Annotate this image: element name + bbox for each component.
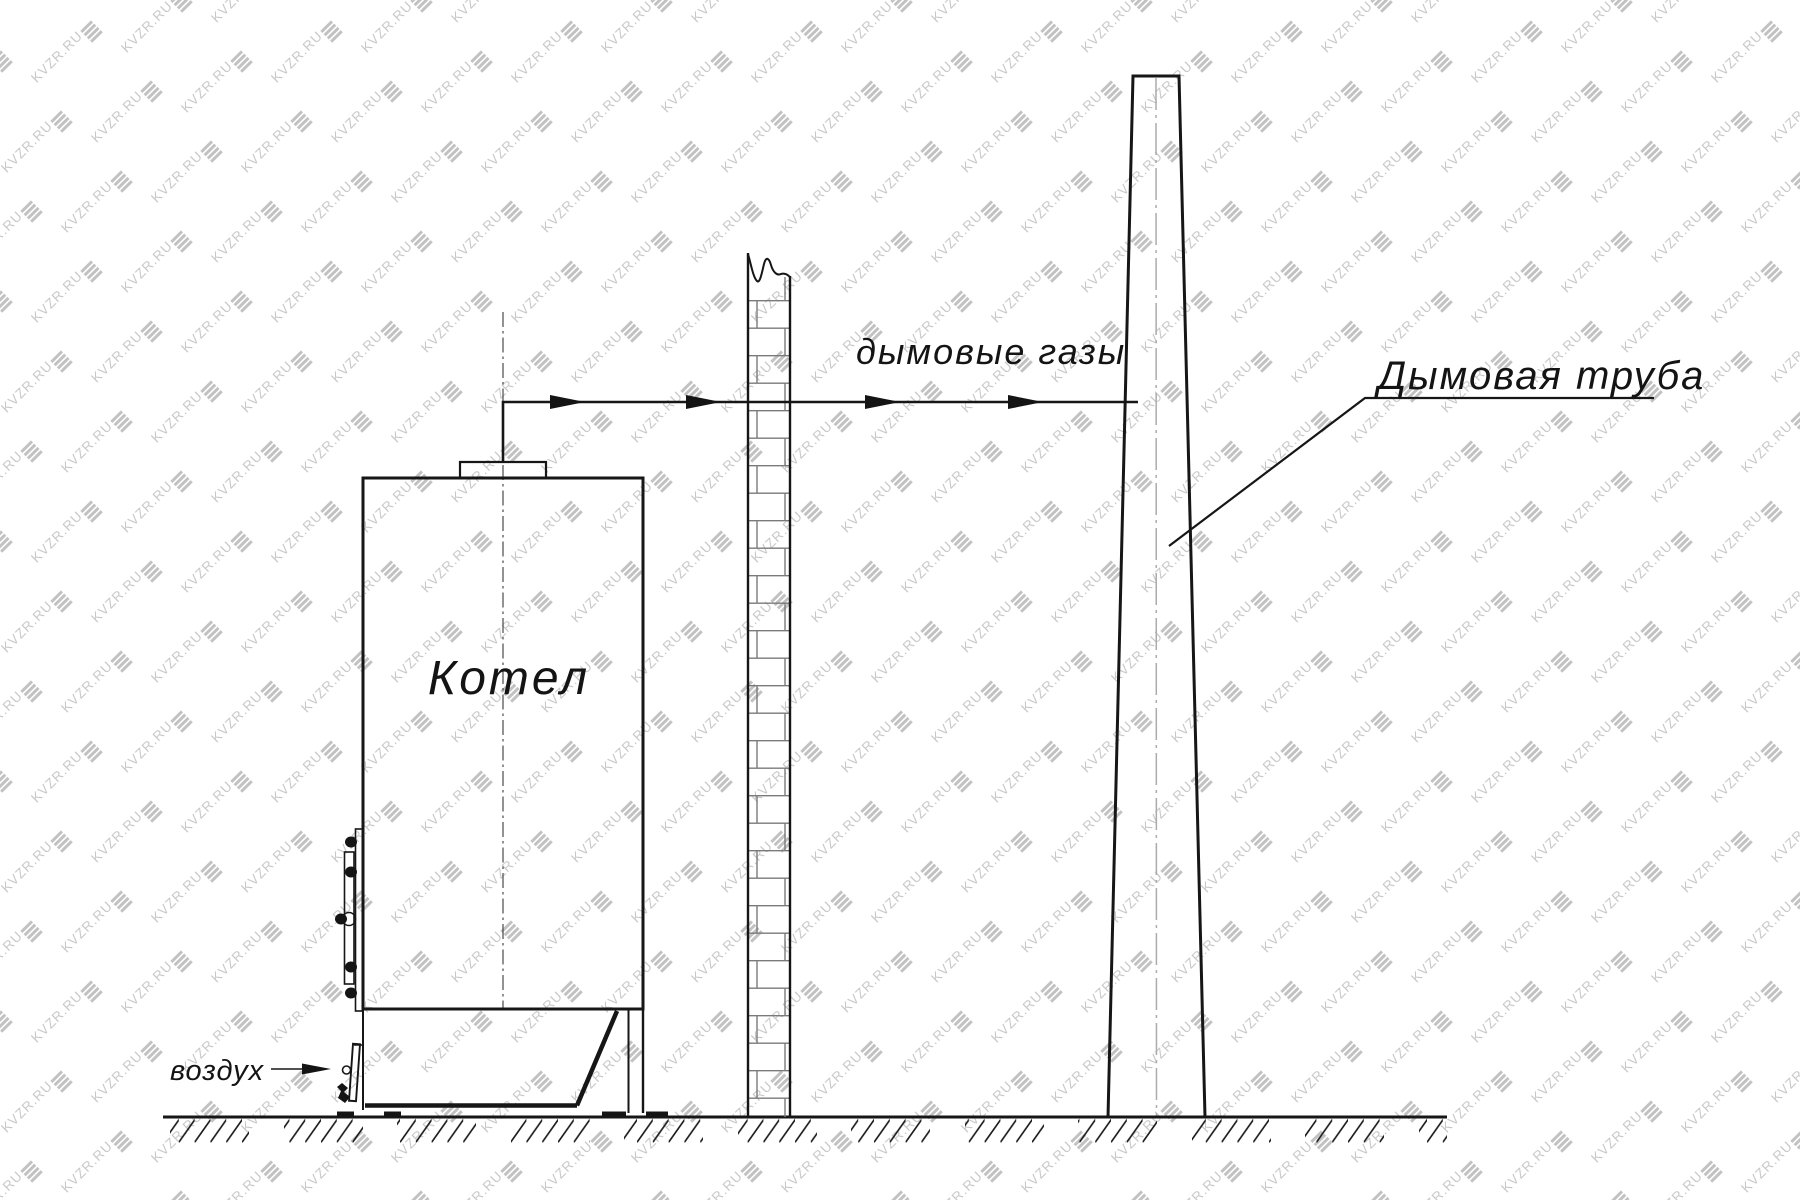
watermark-overlay [0,0,1800,1200]
hinge-knob-icon [345,837,357,848]
door-handle-icon [335,914,347,925]
ground [163,1117,1447,1143]
foot-pad [602,1112,626,1118]
ground-hatch-segment [511,1119,590,1143]
foot-pad [337,1112,354,1118]
foot-pad [646,1112,668,1118]
chimney-label: Дымовая труба [1374,354,1705,398]
chimney-centerline [1156,78,1157,1117]
ground-hatch-segment [738,1119,817,1143]
hinge-knob-icon [345,867,357,878]
ground-hatch-segment [284,1119,363,1143]
ground-hatch-segment [1305,1119,1384,1143]
drawing-canvas: KVZR.RU [0,0,1800,1200]
ground-hatch-segment [1192,1119,1271,1143]
ground-hatch-segment [965,1119,1044,1143]
flue-gases-label: дымовые газы [856,331,1126,372]
ground-hatch-segment [1419,1119,1447,1143]
ground-hatch-segment [170,1119,249,1143]
hinge-knob-icon [345,962,357,973]
boiler-chimney-scheme: KVZR.RU [0,0,1800,1200]
foot-pad [384,1112,401,1118]
ground-hatch-segment [624,1119,703,1143]
brick-wall [748,253,790,1117]
ground-hatch-segment [851,1119,930,1143]
boiler-label: Котел [428,652,590,705]
air-label: воздух [170,1055,265,1087]
ground-hatch-segment [1078,1119,1157,1143]
ground-hatch-segment [397,1119,476,1143]
ground-hatch [170,1119,1447,1143]
hinge-knob-icon [345,988,357,999]
